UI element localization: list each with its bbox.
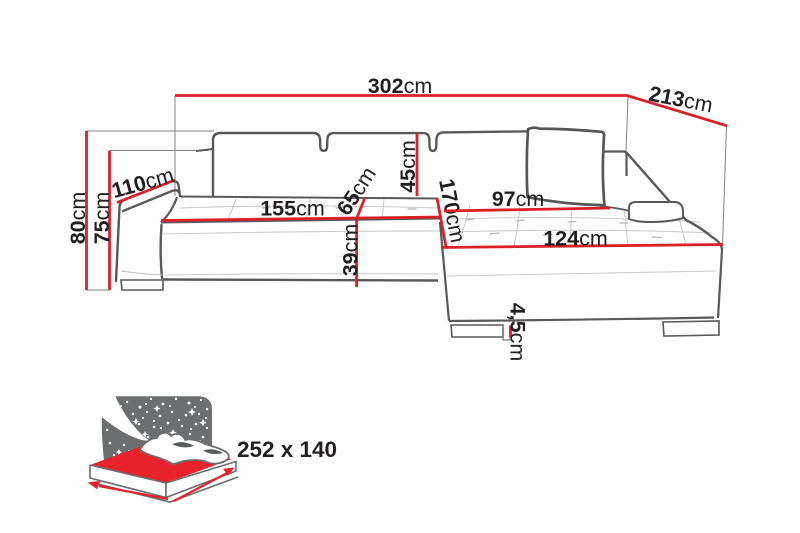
svg-text:155cm: 155cm bbox=[260, 197, 325, 221]
svg-text:80cm: 80cm bbox=[66, 192, 90, 245]
svg-text:75cm: 75cm bbox=[90, 192, 114, 245]
svg-text:124cm: 124cm bbox=[543, 227, 608, 251]
svg-text:39cm: 39cm bbox=[339, 224, 363, 277]
svg-text:4,5cm: 4,5cm bbox=[506, 303, 530, 362]
svg-text:252 x 140: 252 x 140 bbox=[237, 437, 337, 462]
svg-text:302cm: 302cm bbox=[368, 74, 433, 98]
svg-text:97cm: 97cm bbox=[492, 187, 545, 211]
svg-text:45cm: 45cm bbox=[396, 140, 420, 193]
